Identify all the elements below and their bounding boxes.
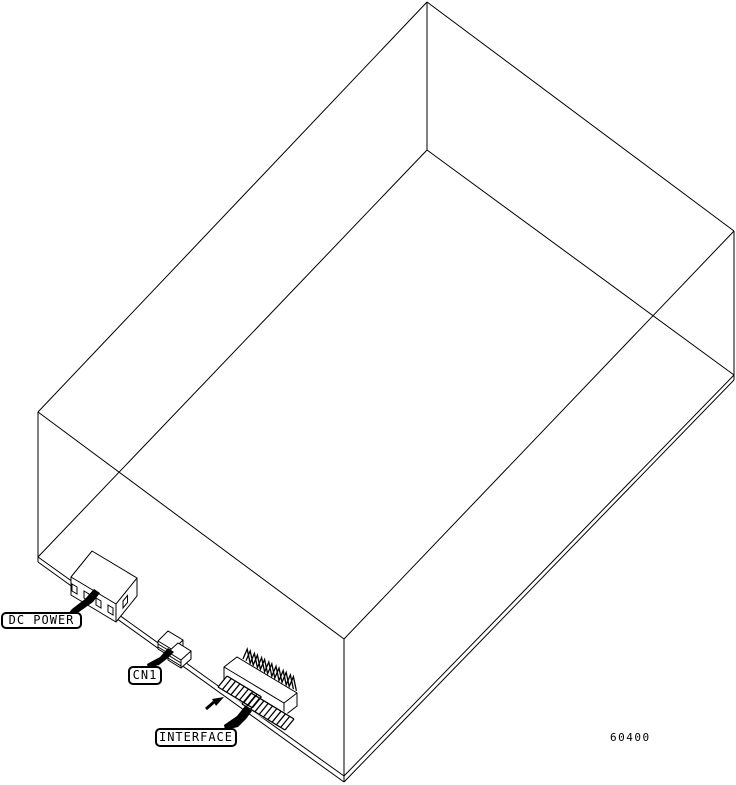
chassis-wireframe — [38, 2, 734, 782]
interface-callout: INTERFACE — [155, 728, 237, 747]
chassis-drawing — [0, 0, 736, 785]
dc-power-callout: DC POWER — [1, 612, 82, 629]
figure-number: 60400 — [610, 731, 651, 744]
dc-power-connector — [71, 551, 137, 622]
cn1-callout: CN1 — [128, 666, 162, 685]
interface-connector — [206, 649, 297, 731]
cn1-connector — [158, 631, 191, 668]
pin1-arrow-icon — [206, 697, 224, 709]
connector-location-diagram: DC POWER CN1 INTERFACE 60400 — [0, 0, 736, 785]
callout-pointer-interface — [224, 706, 252, 730]
